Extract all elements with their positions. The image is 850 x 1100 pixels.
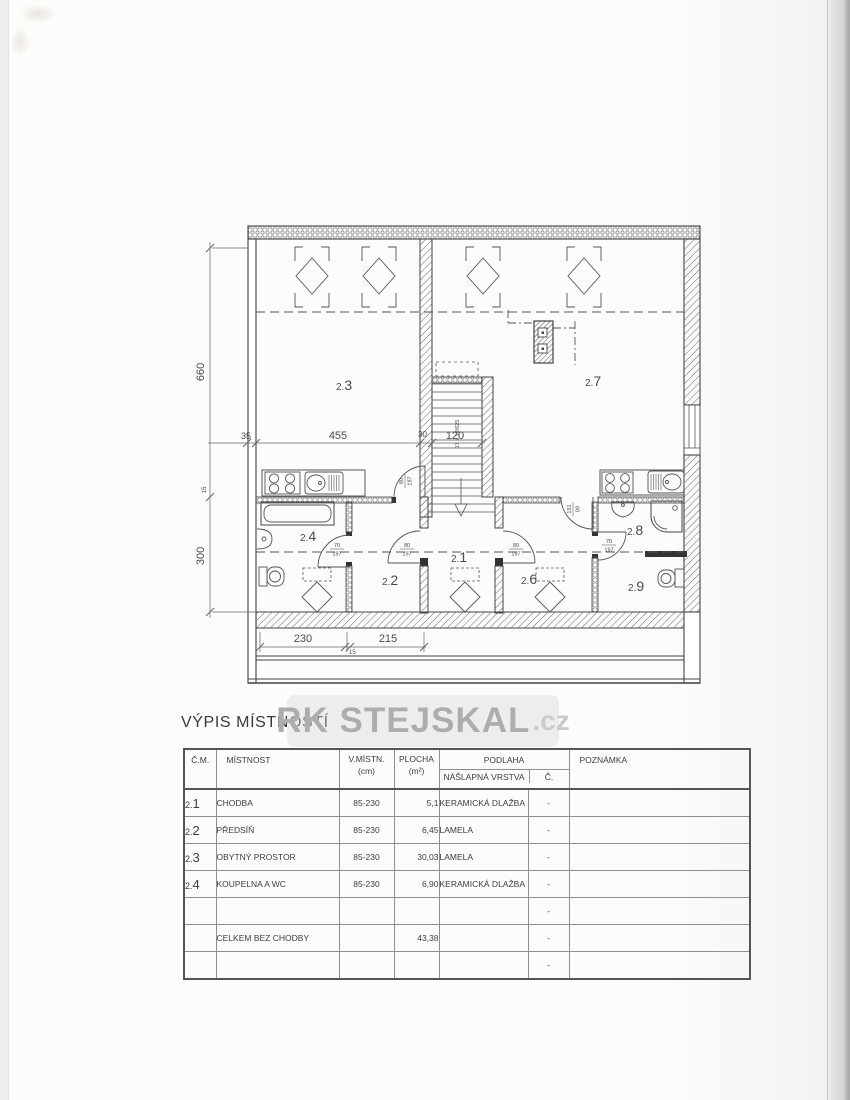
header-cm: Č.M.	[184, 749, 216, 789]
header-plocha-unit: (m²)	[395, 765, 439, 777]
room-area	[394, 898, 439, 925]
svg-text:151: 151	[567, 504, 573, 513]
room-label-2-8: 2.8	[627, 522, 643, 538]
room-name: CELKEM BEZ CHODBY	[216, 925, 339, 952]
room-number-digit: 4	[193, 877, 200, 892]
table-row: -	[184, 898, 750, 925]
room-label-2-4: 2.4	[300, 528, 316, 544]
room-floor	[439, 952, 528, 980]
skylight-icon	[295, 247, 329, 307]
dim-35: 35	[241, 431, 251, 441]
header-c: Č.	[530, 770, 569, 783]
header-plocha: PLOCHA(m²)	[394, 749, 439, 789]
washbasin-icon	[612, 502, 635, 517]
window-right	[684, 405, 700, 455]
room-number: 2.2	[184, 817, 216, 844]
room-note	[569, 817, 750, 844]
room-name	[216, 952, 339, 980]
stove-icon	[602, 472, 633, 493]
header-podlaha-group: PODLAHA NÁŠLAPNÁ VRSTVA Č.	[439, 749, 569, 789]
dimensions: 660 300 15 35 455 30 120 230 15 215	[195, 242, 486, 656]
room-area: 5,1	[394, 789, 439, 817]
door-size-labels: 80 197 70 197 80 197 80 197 70 197 151 0…	[330, 474, 616, 558]
table-row: 2.1 CHODBA 85-230 5,1 KERAMICKÁ DLAŽBA -	[184, 789, 750, 817]
svg-text:197: 197	[332, 552, 341, 558]
room-number-digit: 2	[193, 823, 200, 838]
skylight-icons	[295, 247, 601, 307]
dim-300: 300	[195, 547, 207, 565]
scan-edge-right	[827, 0, 850, 1100]
room-height: 85-230	[339, 789, 394, 817]
room-c: -	[528, 817, 569, 844]
header-plocha-label: PLOCHA	[395, 753, 439, 765]
room-number	[184, 952, 216, 980]
room-c: -	[528, 871, 569, 898]
skylight-icon	[567, 247, 601, 307]
header-naslapna-vrstva: NÁŠLAPNÁ VRSTVA	[440, 770, 530, 783]
room-height	[339, 898, 394, 925]
dim-660: 660	[195, 363, 207, 381]
room-c: -	[528, 844, 569, 871]
door-size-label: 70 197	[602, 539, 616, 554]
room-c: -	[528, 898, 569, 925]
header-vmistn: V.MÍSTN.(cm)	[339, 749, 394, 789]
svg-text:70: 70	[606, 539, 612, 545]
header-mistnost: MÍSTNOST	[216, 749, 339, 789]
dim-230: 230	[294, 633, 312, 645]
room-height: 85-230	[339, 817, 394, 844]
room-area: 43,38	[394, 925, 439, 952]
watermark: RK STEJSKAL.cz	[287, 695, 559, 747]
shower-icon	[651, 501, 682, 532]
door-size-label: 80 197	[509, 543, 523, 558]
header-podlaha: PODLAHA	[440, 750, 569, 770]
door-arc	[598, 532, 626, 560]
roof-window-icon	[450, 568, 480, 612]
dim-15-left: 15	[202, 486, 208, 493]
table-row: 2.3 OBYTNÝ PROSTOR 85-230 30,03 LAMELA -	[184, 844, 750, 871]
stove-icon	[265, 472, 300, 494]
room-label-2-3: 2.3	[336, 377, 352, 393]
svg-text:197: 197	[408, 476, 414, 485]
roof-window-icon	[302, 568, 332, 612]
room-note	[569, 898, 750, 925]
room-label-2-2: 2.2	[382, 572, 398, 588]
interior-walls	[256, 239, 687, 628]
room-floor: LAMELA	[439, 817, 528, 844]
room-height: 85-230	[339, 844, 394, 871]
table-header-row: Č.M. MÍSTNOST V.MÍSTN.(cm) PLOCHA(m²) PO…	[184, 749, 750, 789]
room-number-prefix: 2.	[185, 854, 193, 864]
room-note	[569, 952, 750, 980]
header-vmistn-unit: (cm)	[340, 765, 394, 777]
bathroom-28-29-fixtures	[612, 501, 684, 587]
dim-15-bottom: 15	[349, 650, 356, 656]
room-number: 2.1	[184, 789, 216, 817]
room-number-prefix: 2.	[185, 881, 193, 891]
room-label-2-7: 2.7	[585, 373, 601, 389]
room-area	[394, 952, 439, 980]
room-name: PŘEDSÍŇ	[216, 817, 339, 844]
sink-icon	[648, 471, 684, 493]
room-c: -	[528, 925, 569, 952]
room-c: -	[528, 952, 569, 980]
svg-text:80: 80	[513, 543, 519, 549]
room-height	[339, 925, 394, 952]
sink-icon	[305, 472, 343, 494]
kitchen-left	[262, 470, 365, 496]
svg-text:80: 80	[404, 543, 410, 549]
room-floor: KERAMICKÁ DLAŽBA	[439, 789, 528, 817]
stair-direction-arrow	[455, 478, 467, 516]
header-poznamka: POZNÁMKA	[569, 749, 750, 789]
svg-text:197: 197	[604, 548, 613, 554]
room-floor: KERAMICKÁ DLAŽBA	[439, 871, 528, 898]
room-label-2-1: 2.1	[451, 549, 467, 565]
door-size-label: 80 197	[400, 543, 414, 558]
room-number	[184, 925, 216, 952]
room-floor: LAMELA	[439, 844, 528, 871]
room-number-prefix: 2.	[185, 827, 193, 837]
room-c: -	[528, 789, 569, 817]
header-vmistn-label: V.MÍSTN.	[340, 753, 394, 765]
room-note	[569, 844, 750, 871]
room-number-digit: 3	[193, 850, 200, 865]
room-note	[569, 925, 750, 952]
bathroom-24-fixtures	[257, 502, 334, 612]
room-note	[569, 789, 750, 817]
dim-30: 30	[418, 430, 427, 439]
room-number-prefix: 2.	[185, 800, 193, 810]
dim-215: 215	[379, 633, 397, 645]
table-row: 2.2 PŘEDSÍŇ 85-230 6,45 LAMELA -	[184, 817, 750, 844]
toilet-icon	[259, 567, 284, 586]
toilet-icon	[658, 569, 684, 587]
room-name: KOUPELNA A WC	[216, 871, 339, 898]
watermark-text: RK STEJSKAL	[276, 701, 530, 741]
table-row: 2.4 KOUPELNA A WC 85-230 6,90 KERAMICKÁ …	[184, 871, 750, 898]
skylight-icon	[466, 247, 500, 307]
room-number: 2.4	[184, 871, 216, 898]
svg-text:09: 09	[576, 506, 582, 512]
room-height	[339, 952, 394, 980]
room-height: 85-230	[339, 871, 394, 898]
scan-edge-left-dark	[0, 1008, 6, 1100]
skylight-icon	[362, 247, 396, 307]
room-name: CHODBA	[216, 789, 339, 817]
rooms-table: Č.M. MÍSTNOST V.MÍSTN.(cm) PLOCHA(m²) PO…	[183, 748, 751, 980]
door-size-label: 70 197	[330, 543, 344, 558]
washbasin-icon	[257, 529, 272, 549]
room-floor	[439, 925, 528, 952]
table-row: -	[184, 952, 750, 980]
room-number	[184, 898, 216, 925]
bathtub-icon	[261, 502, 334, 525]
kitchen-right	[600, 470, 684, 495]
svg-text:80: 80	[399, 478, 405, 484]
svg-text:197: 197	[402, 552, 411, 558]
svg-text:70: 70	[334, 543, 340, 549]
door-size-label: 151 09	[567, 502, 582, 516]
room-label-2-9: 2.9	[628, 578, 644, 594]
room-area: 6,45	[394, 817, 439, 844]
room-floor	[439, 898, 528, 925]
watermark-suffix: .cz	[532, 705, 569, 737]
roof-window-icon	[535, 568, 565, 612]
room-name	[216, 898, 339, 925]
table-row: CELKEM BEZ CHODBY 43,38 -	[184, 925, 750, 952]
room-note	[569, 871, 750, 898]
room-name: OBYTNÝ PROSTOR	[216, 844, 339, 871]
room-area: 6,90	[394, 871, 439, 898]
door-size-label: 80 197	[399, 474, 414, 488]
svg-text:197: 197	[511, 552, 520, 558]
floor-plan: 17 x 19/625	[0, 0, 850, 710]
chimney	[508, 310, 575, 365]
dim-455: 455	[329, 430, 347, 442]
room-area: 30,03	[394, 844, 439, 871]
room-number-digit: 1	[193, 796, 200, 811]
dim-120: 120	[446, 430, 464, 442]
room-number: 2.3	[184, 844, 216, 871]
room-label-2-6: 2.6	[521, 571, 537, 587]
